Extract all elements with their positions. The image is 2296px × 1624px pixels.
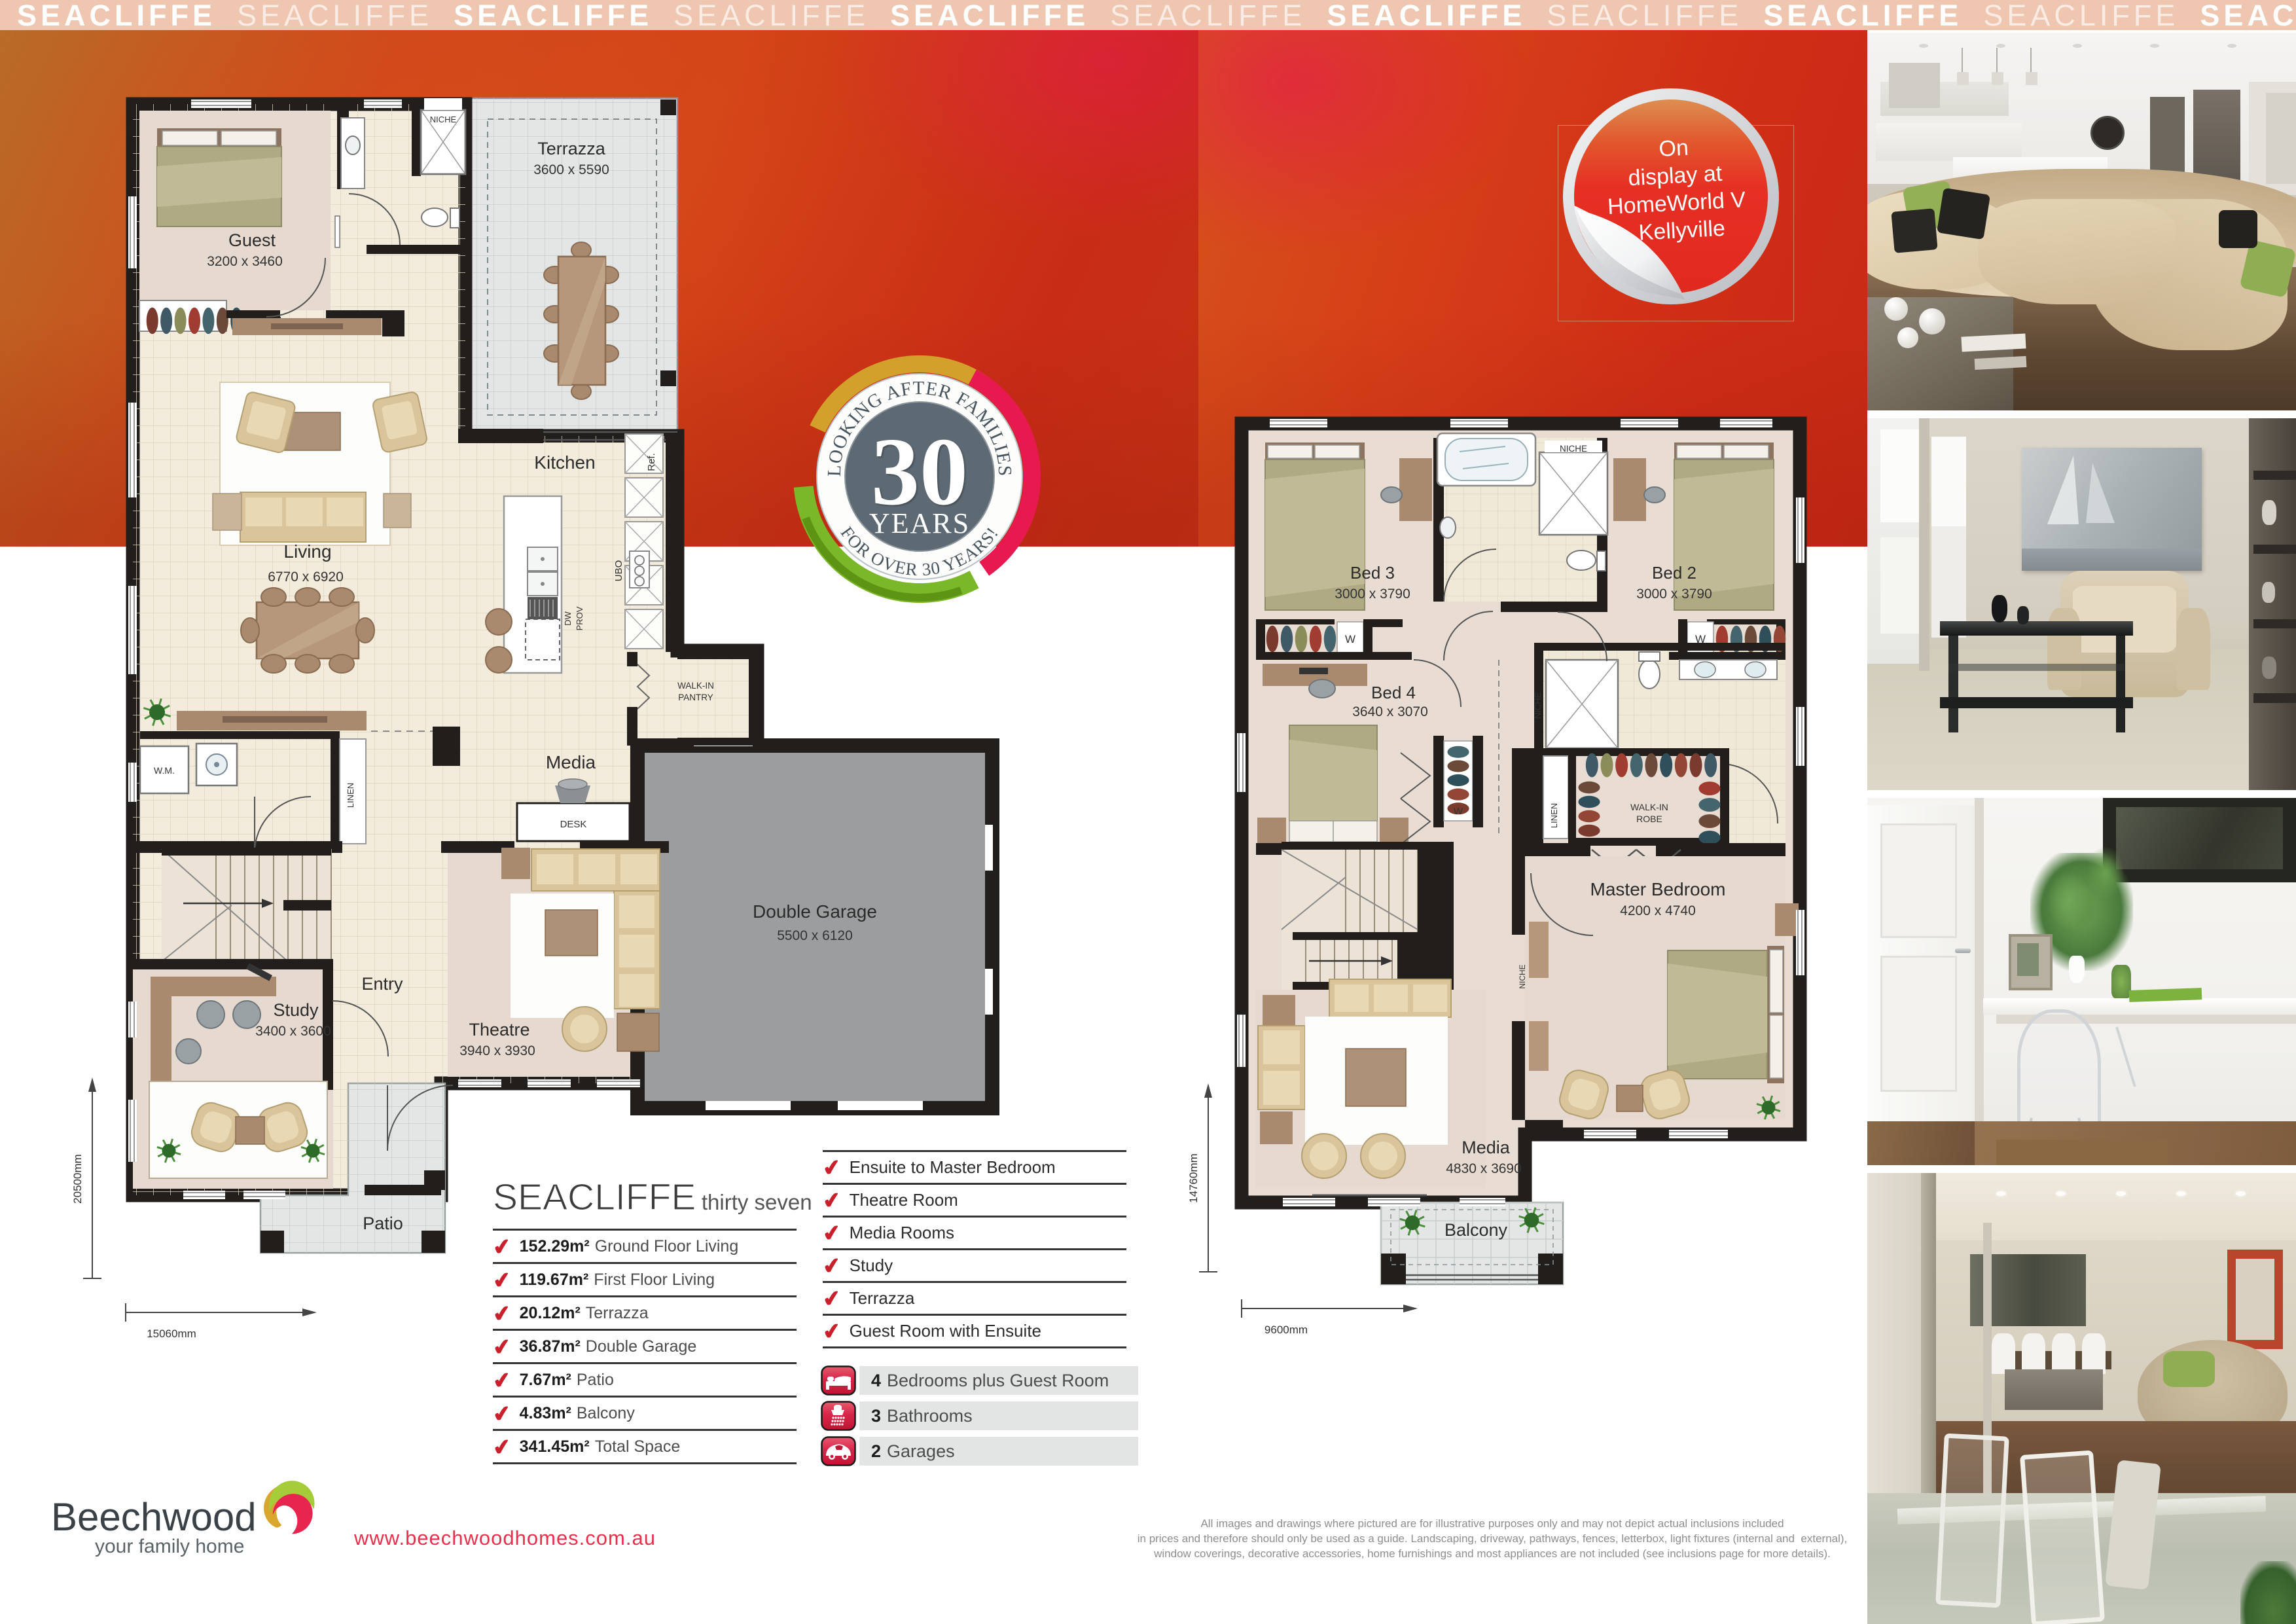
svg-text:6770 x 6920: 6770 x 6920: [268, 569, 344, 585]
svg-text:DESK: DESK: [560, 819, 587, 830]
svg-text:Patio: Patio: [363, 1214, 403, 1233]
svg-text:W.M.: W.M.: [154, 765, 175, 776]
svg-text:W: W: [1454, 806, 1463, 817]
svg-text:PROV: PROV: [575, 606, 584, 630]
svg-text:NICHE: NICHE: [1518, 964, 1527, 988]
svg-text:W: W: [1345, 633, 1355, 645]
svg-text:5500 x 6120: 5500 x 6120: [777, 928, 853, 943]
svg-text:PANTRY: PANTRY: [678, 693, 713, 702]
svg-text:4200 x 4740: 4200 x 4740: [1620, 903, 1696, 918]
svg-text:Kellyville: Kellyville: [1638, 216, 1726, 245]
svg-text:Entry: Entry: [361, 974, 403, 994]
svg-text:NICHE: NICHE: [1533, 692, 1543, 719]
svg-text:Master Bedroom: Master Bedroom: [1590, 879, 1726, 899]
svg-text:Living: Living: [283, 541, 331, 562]
svg-text:3400 x 3600: 3400 x 3600: [255, 1024, 331, 1039]
svg-text:3000 x 3790: 3000 x 3790: [1636, 586, 1712, 602]
svg-text:DW: DW: [563, 611, 573, 625]
svg-text:ROBE: ROBE: [1636, 814, 1662, 824]
svg-text:Media: Media: [1462, 1138, 1511, 1157]
svg-text:Bed 3: Bed 3: [1350, 563, 1395, 583]
svg-text:On: On: [1659, 135, 1689, 162]
svg-text:Kitchen: Kitchen: [534, 452, 595, 473]
svg-text:15060mm: 15060mm: [147, 1327, 196, 1340]
svg-text:3640 x 3070: 3640 x 3070: [1352, 704, 1428, 719]
svg-text:your family home: your family home: [95, 1536, 244, 1557]
svg-text:Beechwood: Beechwood: [51, 1495, 257, 1539]
svg-text:Theatre: Theatre: [469, 1020, 529, 1039]
svg-text:Double Garage: Double Garage: [753, 901, 877, 922]
svg-text:3000 x 3790: 3000 x 3790: [1335, 586, 1410, 602]
svg-text:20500mm: 20500mm: [71, 1154, 84, 1204]
svg-text:WALK-IN: WALK-IN: [677, 681, 714, 691]
svg-text:Study: Study: [273, 1000, 319, 1020]
svg-text:NICHE: NICHE: [1560, 444, 1587, 454]
svg-text:Terrazza: Terrazza: [537, 139, 606, 158]
svg-text:YEARS: YEARS: [869, 507, 970, 539]
svg-text:3600 x 5590: 3600 x 5590: [533, 162, 609, 177]
svg-text:UBO: UBO: [613, 560, 624, 582]
svg-text:3200 x 3460: 3200 x 3460: [207, 254, 283, 269]
svg-text:display at: display at: [1628, 161, 1723, 190]
svg-text:14760mm: 14760mm: [1187, 1153, 1200, 1203]
svg-text:Bed 2: Bed 2: [1652, 563, 1696, 583]
svg-text:WALK-IN: WALK-IN: [1630, 802, 1668, 812]
svg-text:NICHE: NICHE: [430, 115, 457, 124]
svg-text:Bed 4: Bed 4: [1371, 683, 1416, 702]
svg-text:LINEN: LINEN: [1549, 803, 1559, 828]
svg-text:Guest: Guest: [228, 230, 276, 250]
svg-text:Balcony: Balcony: [1444, 1220, 1508, 1240]
svg-text:4830 x 3690: 4830 x 3690: [1446, 1161, 1522, 1176]
svg-text:Media: Media: [546, 752, 596, 772]
svg-text:3940 x 3930: 3940 x 3930: [459, 1043, 535, 1058]
svg-text:LINEN: LINEN: [346, 783, 355, 808]
svg-text:Ref.: Ref.: [646, 453, 657, 471]
svg-text:9600mm: 9600mm: [1265, 1324, 1308, 1336]
